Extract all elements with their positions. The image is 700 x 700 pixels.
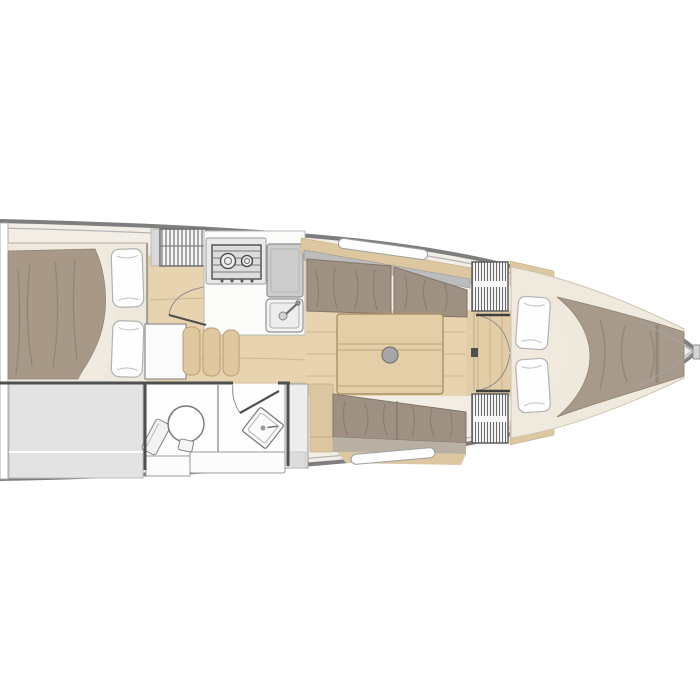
transom (0, 223, 8, 479)
berth-seat-slats (145, 324, 239, 379)
companionway-steps (160, 229, 206, 266)
bow-locker-port (472, 262, 508, 311)
stove-burner-large (221, 254, 236, 269)
v-berth-pillow-1 (515, 296, 551, 350)
aft-cabin (8, 243, 148, 382)
head-shelf (190, 452, 285, 473)
stove-burner-small (242, 256, 253, 267)
stern-storage (9, 384, 143, 478)
table-pedestal (382, 347, 398, 363)
galley-counter (267, 244, 303, 297)
port-settee (301, 238, 472, 317)
head-compartment (141, 384, 288, 476)
aft-berth-pillow-1 (111, 248, 144, 307)
door-latch (471, 348, 478, 357)
v-berth-pillow-2 (515, 358, 551, 413)
saloon-table (337, 314, 443, 394)
companionway-side-strip (151, 229, 160, 266)
floor-plan-canvas (0, 0, 700, 700)
bow-locker-starboard (472, 394, 508, 443)
head-shelf-left (146, 456, 190, 476)
seat-base (145, 324, 186, 379)
bow-fitting (693, 345, 700, 359)
saloon-wood-panel (310, 384, 333, 452)
port-cushion-1 (307, 259, 391, 314)
boat-floor-plan (0, 0, 700, 700)
galley-sink (266, 299, 303, 332)
galley-stove (206, 238, 266, 284)
aft-berth-pillow-2 (111, 320, 144, 377)
